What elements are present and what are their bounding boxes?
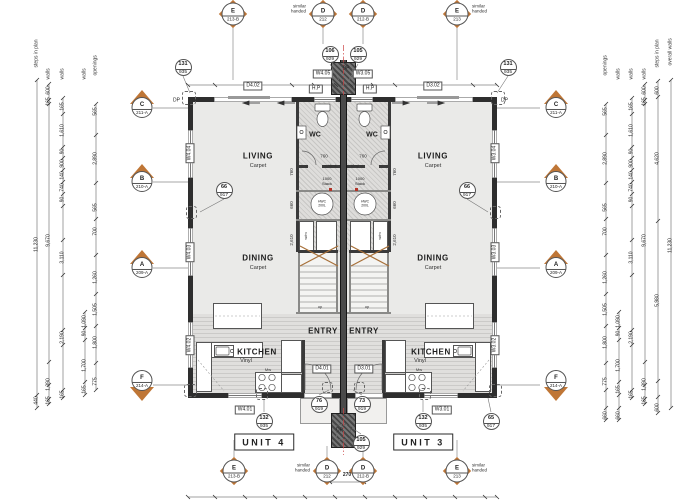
dim-header: openings <box>94 18 99 76</box>
unit3-kitchen-floor: Vinyl <box>414 358 426 364</box>
similar-handed-note-br: similarhanded <box>472 463 487 474</box>
dim-label: 165 <box>82 369 89 409</box>
dim-label: 660 <box>290 201 295 209</box>
unit4-store-wall <box>296 219 340 221</box>
ref-106: 106929 <box>322 46 339 63</box>
dim-label: 1,800 <box>93 322 100 362</box>
grid-marker-f-right: F214-A <box>538 367 574 401</box>
dp-label-tr: DP <box>501 99 508 104</box>
unit3-store-box <box>350 221 371 251</box>
door-marker-d212b-top: D212-B <box>345 0 381 28</box>
dim-label: 165 <box>46 380 53 420</box>
dim-header: openings <box>604 18 609 76</box>
dim-label: 760 <box>290 168 295 176</box>
post-mid-left <box>186 206 197 219</box>
unit3-store-wall <box>347 219 391 221</box>
unit4-stack-label: 1000Stack <box>322 177 332 187</box>
grid-marker-b-right: B210-A <box>538 164 574 198</box>
dim-label: 90 <box>60 179 67 219</box>
post-door-76 <box>322 382 333 393</box>
dim-label: 11,230 <box>668 225 675 265</box>
unit3-stair-string-r <box>387 253 389 312</box>
dim-label: 165 <box>629 374 636 414</box>
unit4-up-label: up <box>318 305 322 309</box>
dim-label: 565 <box>603 91 610 131</box>
unit4-counter-side <box>196 342 212 392</box>
floor-plan-canvas: LIVING Carpet LIVING Carpet DINING Carpe… <box>0 0 700 500</box>
dim-label: 660 <box>393 201 398 209</box>
dim-label: 165 <box>60 374 67 414</box>
door-marker-e213b-bottom: E213-B <box>216 457 252 485</box>
dim-label: 165 <box>46 81 53 121</box>
unit3-sink <box>453 345 473 357</box>
unit4-island-bench <box>213 303 262 329</box>
unit4-dining-floor: Carpet <box>250 265 267 271</box>
grid-marker-a-left: A209-A <box>124 250 160 284</box>
window-w305 <box>351 97 373 102</box>
ref-105-bottom: 105929 <box>353 435 370 452</box>
unit3-hwc-label: HWC 200L <box>359 200 372 207</box>
door-marker-d212-top: D212 <box>305 0 341 28</box>
dim-label: 9,670 <box>46 220 53 260</box>
dim-label: 2,610 <box>290 234 295 245</box>
dim-label: 3,110 <box>629 237 636 277</box>
tag-w304: W3.04 <box>491 143 500 163</box>
tag-d402: D4.02 <box>243 82 262 91</box>
grid-marker-f-left: F214-A <box>124 367 160 401</box>
unit4-stair-string-l <box>298 253 300 312</box>
unit3-wc-label: WC <box>366 132 378 139</box>
dim-label: 440 <box>34 380 41 420</box>
post-door-73 <box>354 382 365 393</box>
ref-132-right: 132935 <box>415 413 432 430</box>
dim-header: walls <box>83 22 88 80</box>
unit3-kitchen-label: KITCHEN <box>411 348 451 357</box>
ref-132-left: 132935 <box>256 413 273 430</box>
tag-w302: W3.02 <box>491 335 500 355</box>
unit3-stair-string-l <box>349 253 351 312</box>
dim-label: 9,670 <box>642 220 649 260</box>
dim-label: 600 <box>655 70 662 110</box>
dim-label: 660 <box>603 395 610 435</box>
unit4-stair-head-wall <box>298 250 338 253</box>
unit3-pantry <box>385 374 406 393</box>
post-bottom-132l <box>256 388 268 400</box>
unit4-title: UNIT 4 <box>234 434 294 451</box>
dim-label: 4,620 <box>655 138 662 178</box>
unit4-landing-edge <box>296 312 340 314</box>
tag-w305: W3.05 <box>353 70 373 79</box>
dim-label: 2,190 <box>629 317 636 357</box>
tag-hp-left: H.P <box>309 85 323 94</box>
ref-66-right: 66917 <box>459 182 476 199</box>
dim-label: 3,110 <box>60 237 67 277</box>
unit3-up-label: up <box>365 305 369 309</box>
unit4-dining-label: DINING <box>242 254 274 263</box>
unit3-title: UNIT 3 <box>393 434 453 451</box>
tag-w404: W4.04 <box>186 143 195 163</box>
door-marker-d212b-bottom: D212-B <box>345 457 381 485</box>
tag-w303: W3.03 <box>491 242 500 262</box>
dim-header: walls <box>617 22 622 80</box>
unit4-kitchen-label: KITCHEN <box>237 348 277 357</box>
dp-label-bc: DP <box>336 429 343 434</box>
unit3-fridge <box>385 340 406 373</box>
unit3-core-wall <box>388 102 391 252</box>
unit4-hwc-label: HWC 200L <box>316 200 329 207</box>
tag-w403: W4.03 <box>186 242 195 262</box>
dim-header: steps in plan <box>656 10 661 68</box>
dim-header: overall walls <box>669 8 674 66</box>
door-d402-opening <box>214 97 292 102</box>
unit3-mw-label: Mw <box>416 368 422 372</box>
unit3-living-label: LIVING <box>418 152 448 161</box>
dim-label: 2,890 <box>93 138 100 178</box>
post-corner-tl <box>182 91 196 105</box>
tag-w405: W4.05 <box>313 70 333 79</box>
similar-handed-note-tl: similarhanded <box>291 4 306 15</box>
dim-label: 760 <box>359 155 367 160</box>
unit3-stack-label: 1000Stack <box>355 177 365 187</box>
dim-label: 2,190 <box>60 317 67 357</box>
dp-label-tl: DP <box>173 99 180 104</box>
unit3-dining-label: DINING <box>417 254 449 263</box>
unit4-stack-wall <box>296 190 340 192</box>
dim-label: 700 <box>603 211 610 251</box>
tag-d302: D3.02 <box>423 82 442 91</box>
tag-w401: W4.01 <box>235 406 255 415</box>
dim-label: 165 <box>642 81 649 121</box>
dp-label-tc: DP <box>343 67 350 72</box>
dim-label: 660 <box>616 395 623 435</box>
tag-w402: W4.02 <box>186 335 195 355</box>
door-marker-e213-bottom: E213 <box>439 457 475 485</box>
dim-label: 2,610 <box>393 234 398 245</box>
dim-label: 760 <box>320 155 328 160</box>
unit4-pantry <box>281 374 302 393</box>
grid-marker-c-left: C211-A <box>124 90 160 124</box>
unit3-wm-label: w/m <box>378 232 382 239</box>
post-mid-right <box>490 206 501 219</box>
dim-label: 90 <box>629 179 636 219</box>
grid-marker-b-left: B210-A <box>124 164 160 198</box>
post-corner-bl <box>184 384 197 397</box>
unit3-wc-floor: Vinyl <box>351 164 360 168</box>
dim-label: 11,230 <box>34 224 41 264</box>
unit4-core-wall <box>296 102 299 252</box>
ref-76: 76919 <box>311 396 328 413</box>
dim-label: 1,800 <box>603 322 610 362</box>
post-bottom-132r <box>419 388 431 400</box>
tag-d301: D3.01 <box>354 365 373 374</box>
dim-label: 5,980 <box>655 280 662 320</box>
ref-65: 65917 <box>483 413 500 430</box>
door-marker-e213b-top: E213-B <box>215 0 251 28</box>
unit4-fridge <box>281 340 302 373</box>
ref-105-top: 105929 <box>350 46 367 63</box>
unit3-stair-floor <box>349 252 389 312</box>
unit4-living-label: LIVING <box>243 152 273 161</box>
unit4-sink <box>214 345 234 357</box>
unit4-kitchen-nib <box>302 340 305 393</box>
dim-header: walls <box>630 22 635 80</box>
door-marker-e213-top: E213 <box>439 0 475 28</box>
unit3-landing-edge <box>347 312 391 314</box>
tag-hp-right: H.P <box>363 85 377 94</box>
door-marker-d212-bottom: D212 <box>309 457 345 485</box>
unit3-dining-floor: Carpet <box>425 265 442 271</box>
grid-marker-a-right: A209-A <box>538 250 574 284</box>
dim-label: 565 <box>93 91 100 131</box>
tag-w301: W3.01 <box>432 406 452 415</box>
unit4-entry-label: ENTRY <box>308 327 338 336</box>
dim-label: 165 <box>642 380 649 420</box>
similar-handed-note-tr: similarhanded <box>472 4 487 15</box>
unit4-wm-label: w/m <box>304 232 308 239</box>
door-d302-opening <box>395 97 473 102</box>
unit4-wc-label: WC <box>309 132 321 139</box>
dim-label: 270 <box>330 473 364 478</box>
similar-handed-note-bl: similarhanded <box>295 463 310 474</box>
unit4-living-floor: Carpet <box>250 163 267 169</box>
unit3-kitchen-nib <box>382 340 385 393</box>
unit3-stair-head-wall <box>349 250 389 253</box>
post-corner-br <box>489 384 502 397</box>
dim-label: 2,890 <box>603 138 610 178</box>
dim-label: 600 <box>655 387 662 427</box>
dim-label: 775 <box>93 361 100 401</box>
dim-label: 760 <box>393 168 398 176</box>
dim-header: walls <box>61 22 66 80</box>
ref-73: 73919 <box>354 396 371 413</box>
party-wall <box>340 60 347 448</box>
dim-label: 700 <box>93 211 100 251</box>
unit4-kitchen-floor: Vinyl <box>240 358 252 364</box>
unit3-island-bench <box>425 303 474 329</box>
unit4-stair-string-r <box>336 253 338 312</box>
unit3-living-floor: Carpet <box>425 163 442 169</box>
ref-131-right: 131935 <box>500 59 517 76</box>
ref-66-left: 66917 <box>216 182 233 199</box>
unit4-mw-label: Mw <box>265 368 271 372</box>
unit3-entry-label: ENTRY <box>349 327 379 336</box>
grid-marker-c-right: C211-A <box>538 90 574 124</box>
unit4-store-box <box>316 221 337 251</box>
unit3-stack-wall <box>347 190 391 192</box>
unit3-wc-wall-b <box>379 165 391 168</box>
tag-d401: D4.01 <box>312 365 331 374</box>
unit4-wc-floor: Vinyl <box>328 164 337 168</box>
dim-header: steps in plan <box>35 10 40 68</box>
ref-131-left: 131935 <box>175 59 192 76</box>
unit4-wc-wall-a <box>296 165 308 168</box>
window-w405 <box>314 97 336 102</box>
